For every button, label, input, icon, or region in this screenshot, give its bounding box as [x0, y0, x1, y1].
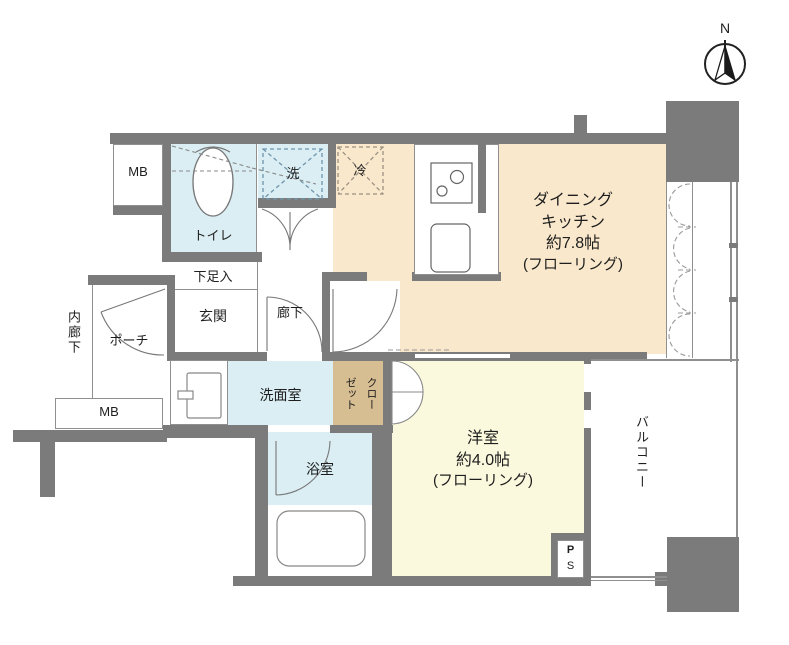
western-line2: 約4.0帖: [385, 450, 581, 472]
inner-corridor-label: 内廊下: [64, 296, 83, 368]
dining-line2: キッチン: [473, 212, 673, 234]
balcony-top-line: [591, 359, 739, 361]
wall: [88, 275, 175, 285]
wall-top: [110, 133, 667, 144]
wall: [162, 252, 262, 262]
bathroom-label: 浴室: [268, 459, 372, 479]
closet-label-col1: クロー: [360, 363, 381, 423]
compass-n-label: N: [711, 20, 739, 36]
wall: [163, 425, 268, 438]
wall: [322, 272, 367, 281]
ps-label-s: S: [557, 559, 584, 575]
wall: [383, 360, 392, 425]
ps-label: P S: [557, 543, 584, 575]
bathtub-area: [268, 505, 372, 576]
ps-label-p: P: [557, 543, 584, 559]
dining-line3: 約7.8帖: [473, 233, 673, 255]
balcony-label: バルコニー: [632, 392, 651, 512]
shoe-cabinet-line: [175, 289, 257, 290]
dining-kitchen-label: ダイニング キッチン 約7.8帖 (フローリング): [473, 190, 673, 275]
window-slit: [584, 410, 591, 428]
wall-top-stub: [574, 115, 587, 133]
western-line1: 洋室: [385, 428, 581, 450]
washroom-label: 洗面室: [228, 385, 333, 405]
column-bottom-right: [667, 537, 739, 612]
toilet-edge: [256, 144, 257, 252]
window-glass-outer: [730, 182, 732, 362]
floor-plan: N MB トイレ 洗 冷 下足入 玄関 廊下 ポーチ 内廊下 MB 洗面室 クロ…: [0, 0, 789, 645]
wall: [40, 442, 55, 497]
washbasin-area: [170, 360, 228, 425]
western-line3: (フローリング): [385, 471, 581, 491]
fold-line: [692, 182, 693, 358]
compass-icon: [705, 40, 745, 84]
dining-line4: (フローリング): [473, 255, 673, 275]
dining-line1: ダイニング: [473, 190, 673, 212]
wall: [328, 133, 336, 208]
western-room-label: 洋室 約4.0帖 (フローリング): [385, 428, 581, 491]
doorway-dining: [330, 281, 400, 352]
wall-south-band: [167, 352, 647, 361]
fridge-label: 冷: [336, 160, 384, 179]
wall: [255, 432, 268, 576]
balcony-rail-2: [591, 580, 667, 581]
mb-bottom-label: MB: [55, 404, 163, 419]
wall-bottom: [233, 576, 591, 586]
doorway-washroom: [267, 352, 322, 361]
mb-top-label: MB: [113, 164, 163, 179]
washer-label: 洗: [258, 163, 328, 182]
hallway-label: 廊下: [258, 302, 322, 321]
wall: [258, 198, 336, 208]
sliding-door-slit: [415, 354, 510, 358]
window-joint: [729, 243, 738, 248]
wall: [13, 430, 167, 442]
toilet-label: トイレ: [170, 225, 256, 244]
entrance-label: 玄関: [168, 306, 258, 326]
balcony-rail-1: [591, 576, 667, 578]
closet-label: クローゼット: [339, 363, 381, 423]
window-slit: [584, 364, 591, 392]
closet-label-col2: ゼット: [339, 363, 360, 423]
washer-doors: [262, 209, 318, 250]
railing-stub: [655, 572, 667, 586]
shoe-cabinet-label: 下足入: [168, 266, 258, 285]
porch-label: ポーチ: [90, 330, 168, 349]
column-top-right: [666, 101, 739, 182]
wall: [113, 205, 162, 215]
wall: [322, 272, 330, 360]
window-joint: [729, 297, 738, 302]
